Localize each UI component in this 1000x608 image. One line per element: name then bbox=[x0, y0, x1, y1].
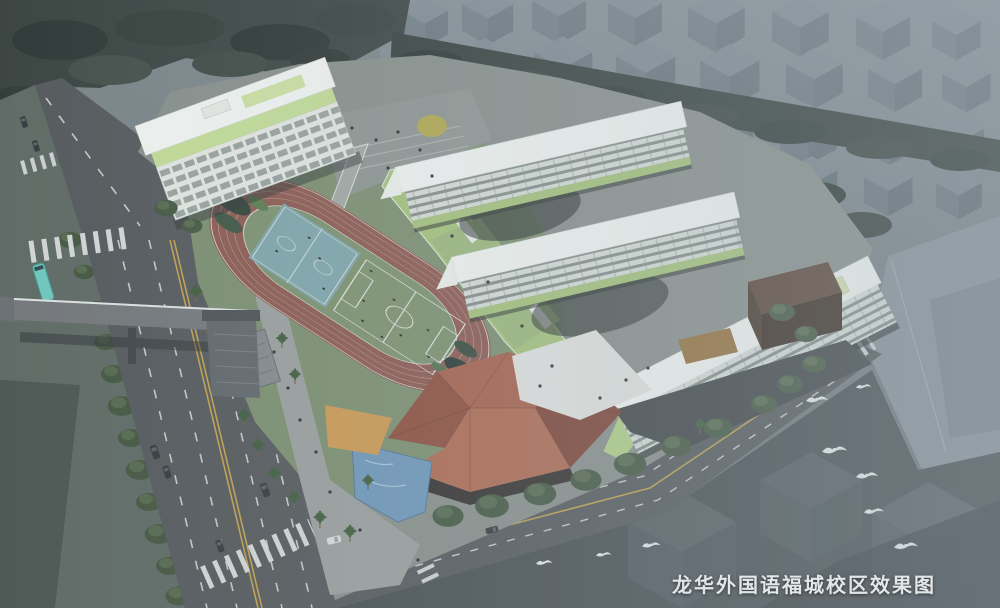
haze-overall bbox=[0, 0, 1000, 608]
rendering-caption: 龙华外国语福城校区效果图 bbox=[672, 569, 936, 598]
rendering-canvas bbox=[0, 0, 1000, 608]
aerial-rendering: 龙华外国语福城校区效果图 bbox=[0, 0, 1000, 608]
